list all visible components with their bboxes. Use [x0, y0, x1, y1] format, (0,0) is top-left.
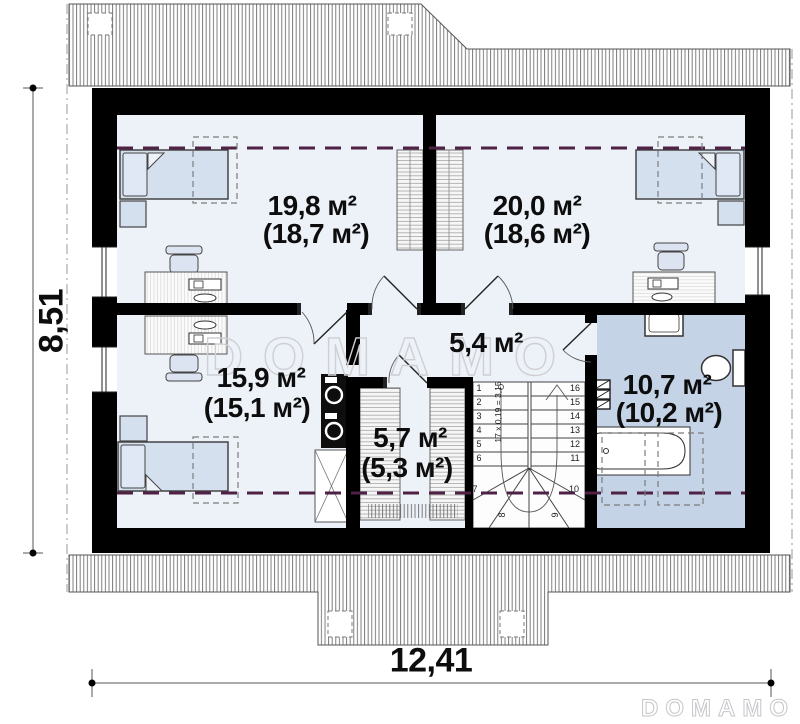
interior-wall: [417, 303, 465, 315]
bathtub-icon: [589, 427, 690, 475]
window-icon: [92, 347, 117, 392]
stair-step-number: 9: [550, 507, 560, 523]
interior-wall: [585, 312, 597, 323]
shelf-hatch: [368, 504, 458, 518]
window-icon: [92, 247, 117, 297]
cabinet-icon: [315, 450, 348, 522]
stair-step-number: 12: [567, 439, 583, 449]
room-label-bathroom-net: (10,2 м²): [616, 397, 722, 429]
stair-step-number: 15: [567, 397, 583, 407]
room-label-bedroom-bottom: 15,9 м²: [217, 362, 306, 394]
stair-step-number: 8: [497, 507, 507, 523]
stair-step-number: 5: [471, 439, 487, 449]
nightstand-icon: [120, 416, 147, 441]
stair-step-number: 3: [471, 411, 487, 421]
stair-formula: 17 x 0,19 = 3,15: [493, 374, 503, 450]
washing-machine-icon: [321, 410, 348, 448]
radiator-icon: [595, 380, 610, 409]
chair-icon: [166, 373, 202, 381]
stair-step-number: 13: [567, 425, 583, 435]
interior-wall: [346, 377, 360, 528]
nightstand-icon: [718, 201, 744, 225]
room-label-bedroom-top-left-net: (18,7 м²): [263, 218, 369, 250]
roof-eave-bottom: [69, 555, 790, 645]
room-label-storage: 5,7 м²: [373, 422, 447, 454]
interior-wall: [513, 303, 745, 315]
dimension-height: 8,51: [33, 289, 72, 353]
window-icon: [745, 247, 770, 295]
interior-wall: [423, 115, 436, 313]
stair-step-number: 14: [567, 411, 583, 421]
roof-vent-icon: [500, 611, 524, 637]
chair-icon: [654, 243, 688, 251]
room-label-hallway: 5,4 м²: [449, 327, 523, 359]
room-label-bedroom-top-right-net: (18,6 м²): [484, 218, 590, 250]
watermark-logo: DOMAMO: [641, 695, 795, 723]
stair-step-number: 7: [467, 484, 483, 494]
roof-vent-icon: [88, 13, 112, 35]
stair-step-number: 6: [471, 453, 487, 463]
dimension-width: 12,41: [390, 642, 473, 681]
roof-vent-icon: [388, 13, 412, 35]
room-label-storage-net: (5,3 м²): [361, 452, 452, 484]
stair-step-number: 16: [567, 383, 583, 393]
chair-icon: [658, 252, 684, 270]
wardrobe-icon: [436, 150, 463, 250]
room-label-bedroom-bottom-net: (15,1 м²): [204, 392, 310, 424]
floor-plan: DOMAMO DOMAMO 19,8 м² (18,7 м²) 20,0 м² …: [0, 0, 800, 724]
roof-eave-top: [69, 4, 790, 86]
interior-wall: [117, 303, 300, 315]
chair-icon: [170, 255, 198, 273]
stair-step-number: 4: [471, 425, 487, 435]
stair-step-number: 2: [471, 397, 487, 407]
stair-step-number: 1: [471, 383, 487, 393]
chair-icon: [170, 355, 198, 372]
chair-icon: [166, 246, 202, 254]
nightstand-icon: [120, 201, 146, 227]
stair-step-number: 11: [567, 453, 583, 463]
stair-step-number: 10: [566, 484, 582, 494]
roof-vent-icon: [328, 611, 352, 637]
interior-wall: [585, 355, 597, 528]
